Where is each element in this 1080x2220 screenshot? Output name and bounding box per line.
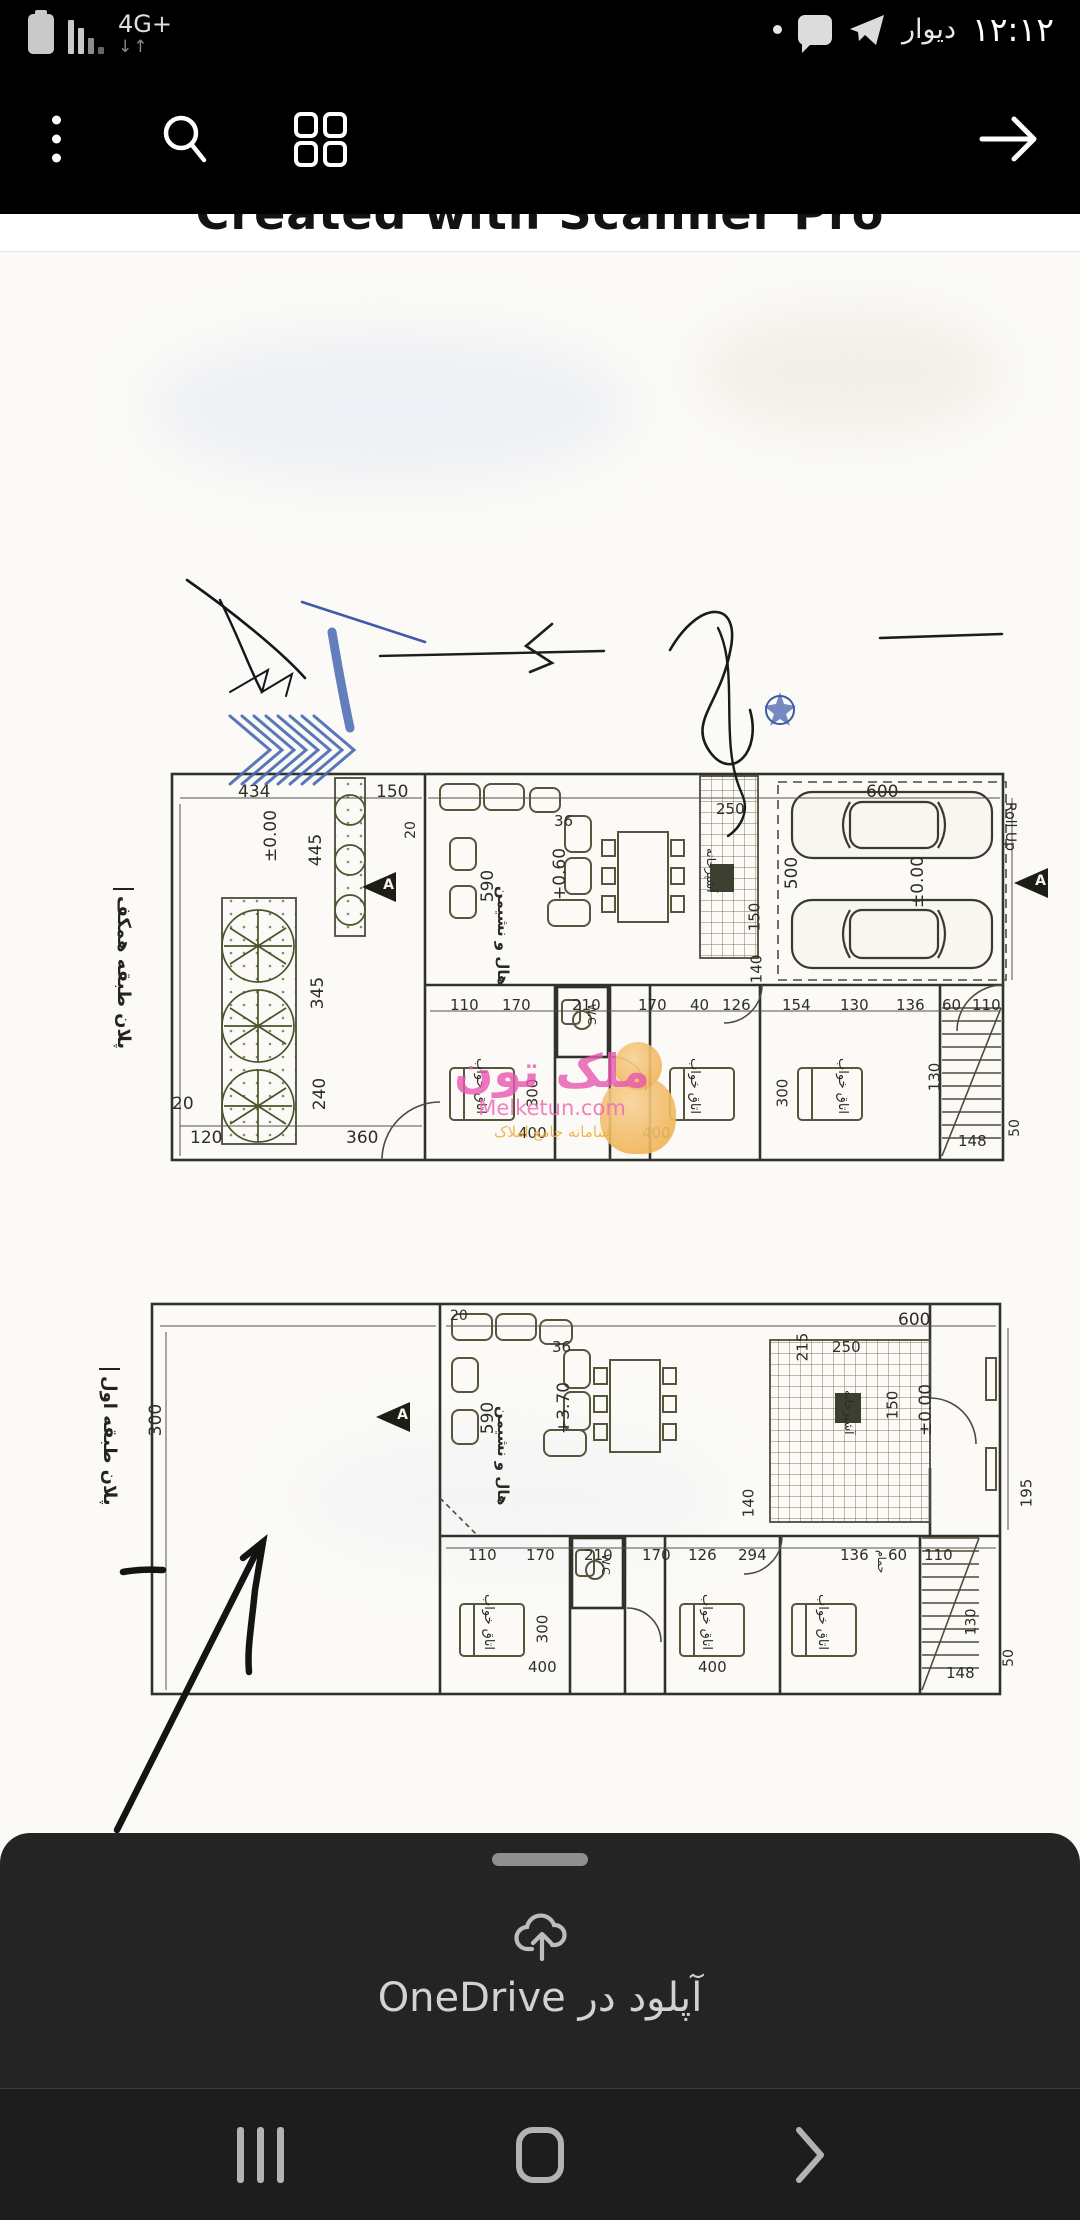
- home-button[interactable]: [460, 2089, 620, 2220]
- dim-label: 130: [963, 1609, 979, 1636]
- dim-label: 170: [526, 1546, 555, 1564]
- dim-label: 126: [722, 996, 751, 1014]
- dim-label: 50: [1007, 1119, 1023, 1137]
- room-label-bedroom: اتاق خواب: [481, 1594, 496, 1650]
- dim-label: 60: [942, 996, 961, 1014]
- dim-label: 195: [1017, 1479, 1035, 1508]
- network-type: 4G+↓↑: [118, 12, 172, 56]
- dim-label: 136: [896, 996, 925, 1014]
- home-icon: [516, 2127, 564, 2183]
- level-label: +0.60: [550, 848, 570, 900]
- dim-label: 150: [883, 1391, 901, 1420]
- data-arrows-icon: ↓↑: [118, 39, 172, 56]
- level-label: ±0.00: [916, 1384, 936, 1436]
- room-label-hall: هال و نشیمن: [494, 1406, 512, 1505]
- scanner-watermark-text: Created with Scanner Pro: [196, 214, 885, 240]
- dim-label: 215: [793, 1333, 811, 1362]
- status-right-icons: دیوار ۱۲:۱۲: [773, 10, 1054, 49]
- pages-grid-icon[interactable]: [292, 111, 350, 167]
- dim-label: 500: [782, 857, 802, 889]
- clock: ۱۲:۱۲: [972, 10, 1054, 49]
- forward-arrow-icon[interactable]: [978, 113, 1040, 165]
- dim-label: 110: [450, 996, 479, 1014]
- dim-label: 600: [898, 1310, 930, 1330]
- recents-button[interactable]: [180, 2089, 340, 2220]
- plan-title: پلان طبقه اول: [99, 1368, 120, 1505]
- overflow-menu-icon[interactable]: [52, 106, 61, 173]
- room-label-bath: حمام: [875, 1550, 888, 1573]
- dim-label: 154: [782, 996, 811, 1014]
- dim-label: 400: [528, 1658, 557, 1676]
- sheet-drag-handle[interactable]: [492, 1853, 588, 1866]
- android-navigation-bar: [0, 2088, 1080, 2220]
- dim-label: 120: [190, 1128, 222, 1148]
- section-marker: A: [362, 872, 396, 902]
- notification-dot-icon: [773, 25, 782, 34]
- level-label: ±0.00: [908, 856, 928, 908]
- scan-smudge: [700, 312, 1000, 432]
- back-chevron-icon: [795, 2126, 825, 2184]
- dim-label: 60: [888, 1546, 907, 1564]
- room-label-hall: هال و نشیمن: [494, 886, 512, 985]
- watermark-domain: Melketun.com: [402, 1096, 702, 1120]
- handwritten-arrow-mark: [105, 1530, 285, 1840]
- room-label-bedroom: اتاق خواب: [699, 1594, 714, 1650]
- watermark: ملک تون Melketun.com سامانه جامع املاک: [402, 1048, 702, 1141]
- dim-label: 300: [773, 1079, 791, 1108]
- dim-label: 110: [972, 996, 1001, 1014]
- room-label-kitchen: آشپزخانه: [704, 848, 718, 892]
- dim-label: 148: [958, 1132, 987, 1150]
- viewer-toolbar: [0, 64, 1080, 214]
- dim-label: 148: [946, 1664, 975, 1682]
- recents-icon: [237, 2127, 284, 2183]
- room-label-bedroom: اتاق خواب: [835, 1058, 850, 1114]
- dim-label: 136: [840, 1546, 869, 1564]
- notification-app-name: دیوار: [902, 14, 956, 45]
- ink-scribbles-overlay: [80, 420, 1040, 840]
- status-left-icons: 4G+↓↑: [28, 12, 172, 56]
- dim-label: 130: [840, 996, 869, 1014]
- dim-label: 170: [502, 996, 531, 1014]
- room-label-kitchen: آشپزخانه: [842, 1390, 856, 1434]
- dim-label: 300: [146, 1404, 166, 1436]
- battery-icon: [28, 14, 54, 54]
- scanner-watermark-banner: Created with Scanner Pro: [0, 214, 1080, 252]
- dim-label: 400: [698, 1658, 727, 1676]
- plan-title: پلان طبقه همکف: [113, 888, 134, 1049]
- watermark-title: ملک تون: [402, 1048, 702, 1094]
- dim-label: 360: [346, 1128, 378, 1148]
- dim-label: 345: [308, 977, 328, 1009]
- dim-label: 20: [450, 1308, 468, 1324]
- phone-screen: 4G+↓↑ دیوار ۱۲:۱۲: [0, 0, 1080, 2220]
- dim-label: 250: [832, 1338, 861, 1356]
- dim-label: 140: [747, 955, 765, 984]
- back-button[interactable]: [730, 2089, 890, 2220]
- onedrive-upload-icon[interactable]: [512, 1905, 572, 1965]
- upload-to-onedrive-action[interactable]: آپلود در OneDrive: [0, 1975, 1080, 2021]
- room-label-wc: W.C: [599, 1554, 612, 1575]
- watermark-subtitle: سامانه جامع املاک: [402, 1123, 702, 1141]
- dim-label: 240: [310, 1078, 330, 1110]
- room-label-wc: W.C: [585, 1004, 598, 1025]
- dim-label: 40: [690, 996, 709, 1014]
- search-icon[interactable]: [158, 112, 212, 166]
- dim-label: 110: [924, 1546, 953, 1564]
- dim-label: 150: [745, 903, 763, 932]
- dim-label: 140: [739, 1489, 757, 1518]
- dim-label: 300: [533, 1615, 551, 1644]
- section-marker: A: [1014, 868, 1048, 898]
- room-label-bedroom: اتاق خواب: [815, 1594, 830, 1650]
- dim-label: 170: [638, 996, 667, 1014]
- dim-label: 294: [738, 1546, 767, 1564]
- message-notification-icon: [798, 15, 832, 45]
- dim-label: 36: [552, 1338, 571, 1356]
- dim-label: 170: [642, 1546, 671, 1564]
- dim-label: 130: [925, 1063, 943, 1092]
- section-marker: A: [376, 1402, 410, 1432]
- dim-label: 126: [688, 1546, 717, 1564]
- dim-label: 20: [172, 1094, 194, 1114]
- dim-label: 110: [468, 1546, 497, 1564]
- level-label: +3.70: [554, 1382, 574, 1434]
- telegram-notification-icon: [848, 13, 886, 47]
- signal-strength-icon: [68, 12, 104, 54]
- dim-label: 50: [1001, 1649, 1017, 1667]
- status-bar: 4G+↓↑ دیوار ۱۲:۱۲: [0, 0, 1080, 64]
